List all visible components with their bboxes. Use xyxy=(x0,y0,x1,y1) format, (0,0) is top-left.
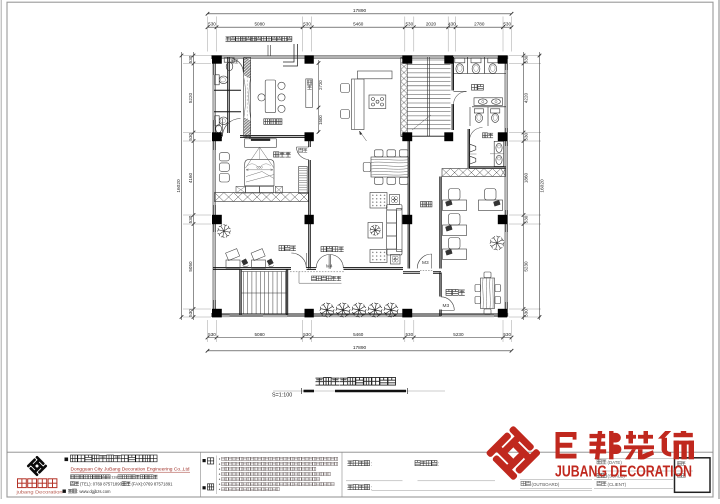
svg-text:(CLIENT): (CLIENT) xyxy=(608,482,627,487)
svg-text:17890: 17890 xyxy=(353,8,367,14)
svg-text:5220: 5220 xyxy=(188,92,193,103)
svg-text:530: 530 xyxy=(303,22,311,27)
svg-text:5230: 5230 xyxy=(453,332,464,337)
svg-text:S=1:100: S=1:100 xyxy=(272,393,292,399)
svg-text:16020: 16020 xyxy=(176,179,182,193)
svg-text:5080: 5080 xyxy=(254,332,265,337)
svg-text:530: 530 xyxy=(188,309,193,317)
svg-text:530: 530 xyxy=(524,132,529,140)
svg-text:118: 118 xyxy=(111,474,118,479)
svg-text:530: 530 xyxy=(303,332,311,337)
svg-text:jubang Decoration: jubang Decoration xyxy=(15,490,63,495)
svg-text:M4: M4 xyxy=(326,264,333,269)
svg-text:530: 530 xyxy=(208,22,216,27)
svg-text::: : xyxy=(371,462,372,468)
svg-text:530: 530 xyxy=(524,55,529,63)
svg-text:4220: 4220 xyxy=(524,92,529,103)
svg-text:M3: M3 xyxy=(443,303,450,309)
svg-text:5050: 5050 xyxy=(188,261,193,272)
svg-text:530: 530 xyxy=(405,332,413,337)
svg-text:17890: 17890 xyxy=(353,345,367,351)
svg-text:(FAX):0769 87571891: (FAX):0769 87571891 xyxy=(132,481,174,486)
svg-text:: www.dgjbzs.com: : www.dgjbzs.com xyxy=(77,489,111,494)
svg-text:1860: 1860 xyxy=(524,172,529,183)
svg-text:16020: 16020 xyxy=(540,179,546,193)
svg-text::: : xyxy=(438,462,439,468)
svg-text:530: 530 xyxy=(503,332,511,337)
svg-text:530: 530 xyxy=(188,215,193,223)
svg-text:530: 530 xyxy=(503,22,511,27)
svg-text:430: 430 xyxy=(448,22,456,27)
svg-text:2720: 2720 xyxy=(318,80,323,90)
svg-text:5230: 5230 xyxy=(524,261,529,272)
svg-text:2020: 2020 xyxy=(426,22,437,27)
svg-text:Dongguan City JuBang Decoratio: Dongguan City JuBang Decoration Engineer… xyxy=(71,467,191,472)
svg-text:5080: 5080 xyxy=(254,22,265,27)
svg-text:2780: 2780 xyxy=(474,22,485,27)
svg-text:(OUTBOARD): (OUTBOARD) xyxy=(532,482,560,487)
svg-text:650: 650 xyxy=(257,166,263,170)
svg-text:JUBANG DECORATION: JUBANG DECORATION xyxy=(555,463,692,480)
svg-text:530: 530 xyxy=(524,215,529,223)
svg-text:530: 530 xyxy=(188,55,193,63)
svg-text:4160: 4160 xyxy=(188,172,193,183)
svg-text:(TEL): 0769 87571890: (TEL): 0769 87571890 xyxy=(80,481,123,486)
svg-text:530: 530 xyxy=(405,22,413,27)
svg-text:M3: M3 xyxy=(422,260,429,266)
svg-text:530: 530 xyxy=(188,132,193,140)
svg-text:1500: 1500 xyxy=(318,115,323,125)
svg-text:5460: 5460 xyxy=(353,332,364,337)
svg-text:530: 530 xyxy=(208,332,216,337)
svg-text:5460: 5460 xyxy=(353,22,364,27)
svg-text:530: 530 xyxy=(524,309,529,317)
